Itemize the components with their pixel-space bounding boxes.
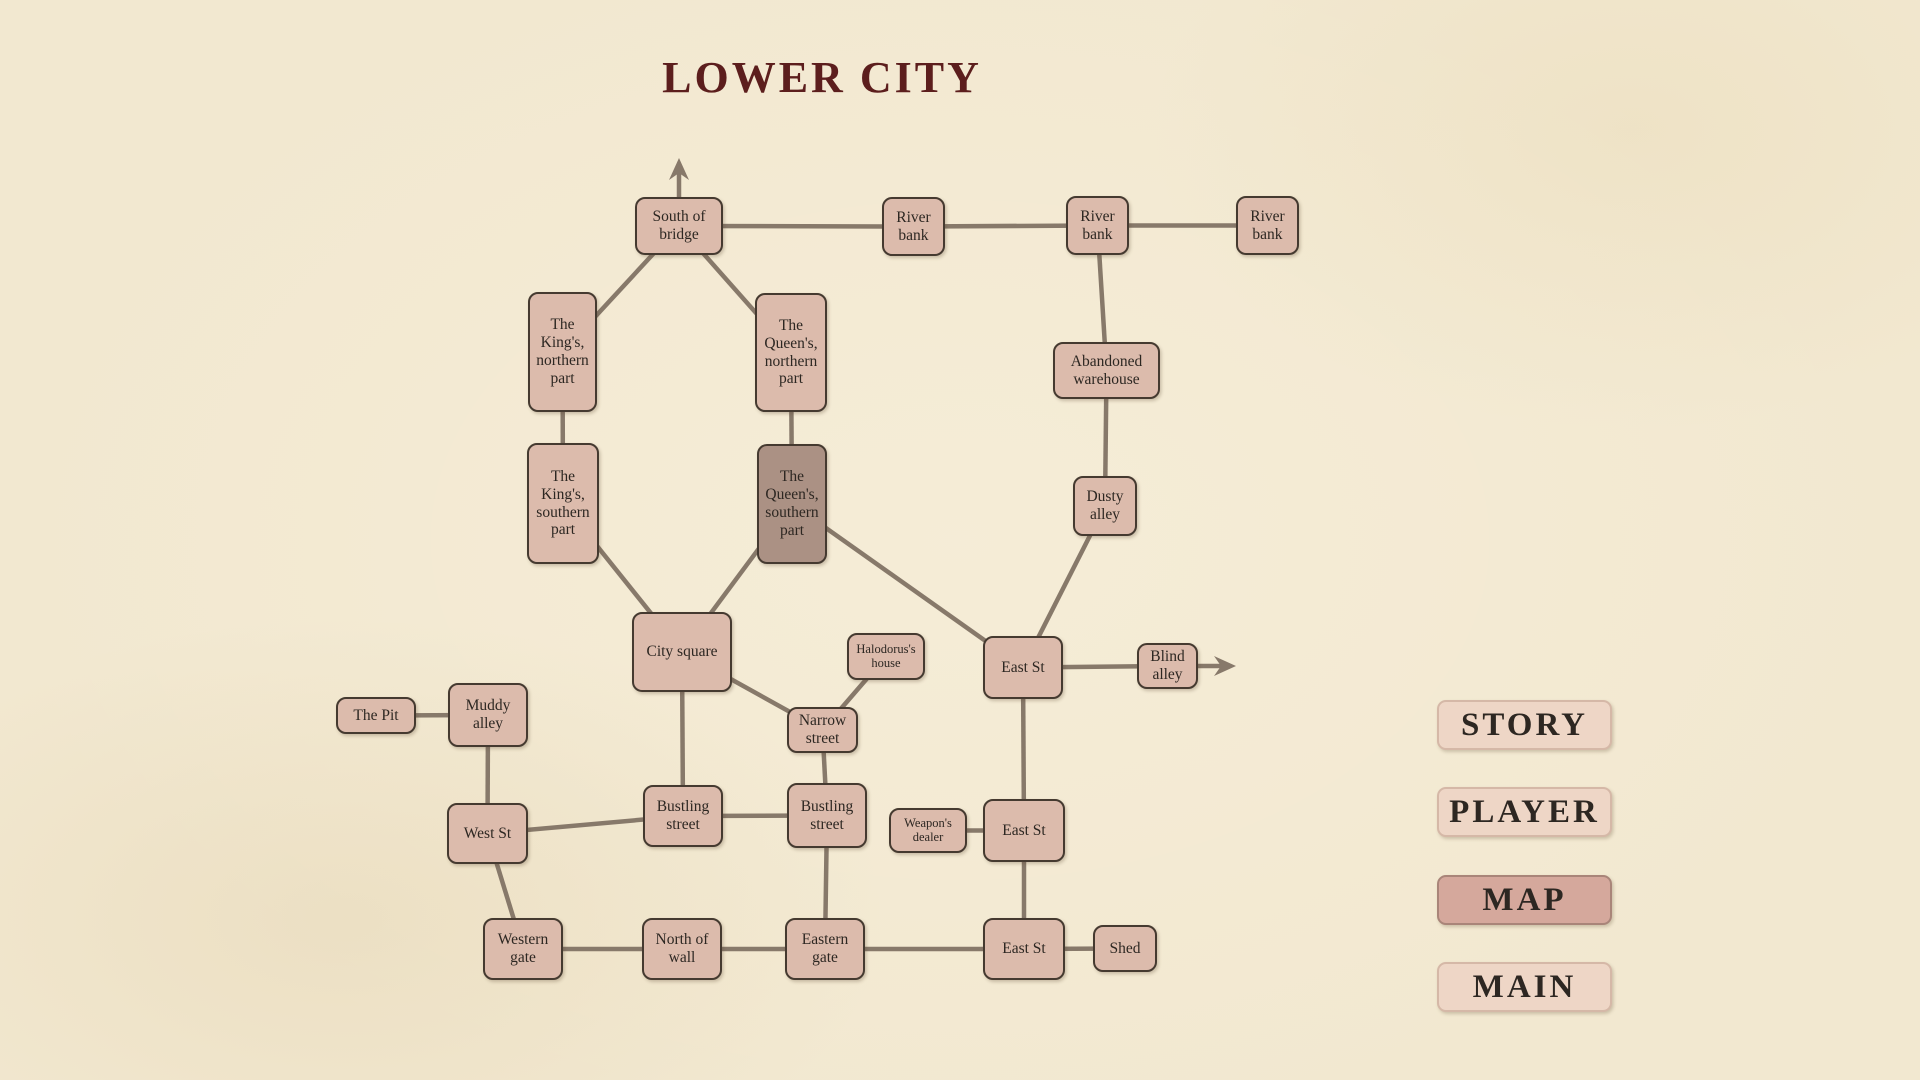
- map-node-western-gate: Western gate: [483, 918, 563, 980]
- map-node-label: The Pit: [353, 707, 398, 725]
- map-node-label: River bank: [1240, 208, 1295, 244]
- map-node-the-pit: The Pit: [336, 697, 416, 734]
- map-node-river-bank-2: River bank: [1066, 196, 1129, 255]
- map-node-label: The King's, northern part: [532, 316, 593, 387]
- nav-button-player[interactable]: PLAYER: [1437, 787, 1612, 837]
- map-node-blind-alley: Blind alley: [1137, 643, 1198, 689]
- nav-button-map[interactable]: MAP: [1437, 875, 1612, 925]
- map-node-label: Muddy alley: [452, 697, 524, 733]
- map-node-bustling-street-east: Bustling street: [787, 783, 867, 848]
- map-connections: [0, 0, 1920, 1080]
- map-node-label: River bank: [886, 209, 941, 245]
- map-node-label: Abandoned warehouse: [1057, 353, 1156, 389]
- map-node-label: The Queen's, northern part: [759, 317, 823, 388]
- map-node-label: East St: [1002, 940, 1046, 958]
- map-node-eastern-gate: Eastern gate: [785, 918, 865, 980]
- map-node-dusty-alley: Dusty alley: [1073, 476, 1137, 536]
- map-node-kings-southern: The King's, southern part: [527, 443, 599, 564]
- east-exit-arrow: [1197, 656, 1236, 676]
- map-node-label: Narrow street: [791, 712, 854, 748]
- map-node-city-square: City square: [632, 612, 732, 692]
- map-node-label: Western gate: [487, 931, 559, 967]
- map-node-south-of-bridge: South of bridge: [635, 197, 723, 255]
- north-exit-arrow: [669, 158, 689, 198]
- map-node-label: Dusty alley: [1077, 488, 1133, 524]
- map-node-label: Eastern gate: [789, 931, 861, 967]
- nav-button-story[interactable]: STORY: [1437, 700, 1612, 750]
- map-node-east-st-mid: East St: [983, 799, 1065, 862]
- map-node-label: East St: [1002, 822, 1046, 840]
- map-node-queens-northern: The Queen's, northern part: [755, 293, 827, 412]
- map-node-queens-southern: The Queen's, southern part: [757, 444, 827, 564]
- map-node-east-st-south: East St: [983, 918, 1065, 980]
- map-node-label: The King's, southern part: [531, 468, 595, 539]
- map-node-label: East St: [1001, 659, 1045, 677]
- map-node-muddy-alley: Muddy alley: [448, 683, 528, 747]
- map-node-label: North of wall: [646, 931, 718, 967]
- map-node-weapons-dealer: Weapon's dealer: [889, 808, 967, 853]
- map-node-label: Blind alley: [1141, 648, 1194, 684]
- map-node-label: River bank: [1070, 208, 1125, 244]
- map-node-label: The Queen's, southern part: [761, 468, 823, 539]
- map-node-halodorus-house: Halodorus's house: [847, 633, 925, 680]
- map-node-river-bank-3: River bank: [1236, 196, 1299, 255]
- map-node-label: South of bridge: [639, 208, 719, 244]
- map-node-bustling-street-west: Bustling street: [643, 785, 723, 847]
- map-node-label: Bustling street: [647, 798, 719, 834]
- map-node-north-of-wall: North of wall: [642, 918, 722, 980]
- map-node-label: Weapon's dealer: [893, 817, 963, 845]
- nav-button-main[interactable]: MAIN: [1437, 962, 1612, 1012]
- map-node-label: City square: [646, 643, 717, 661]
- map-node-kings-northern: The King's, northern part: [528, 292, 597, 412]
- map-node-label: Bustling street: [791, 798, 863, 834]
- map-node-label: West St: [464, 825, 511, 843]
- map-node-abandoned-warehouse: Abandoned warehouse: [1053, 342, 1160, 399]
- map-node-east-st-north: East St: [983, 636, 1063, 699]
- map-node-label: Halodorus's house: [851, 643, 921, 671]
- map-node-narrow-street: Narrow street: [787, 707, 858, 753]
- map-node-shed: Shed: [1093, 925, 1157, 972]
- map-node-label: Shed: [1110, 940, 1141, 958]
- map-node-river-bank-1: River bank: [882, 197, 945, 256]
- game-screen: LOWER CITY South of bridgeRiver bankRive…: [0, 0, 1920, 1080]
- map-node-west-st: West St: [447, 803, 528, 864]
